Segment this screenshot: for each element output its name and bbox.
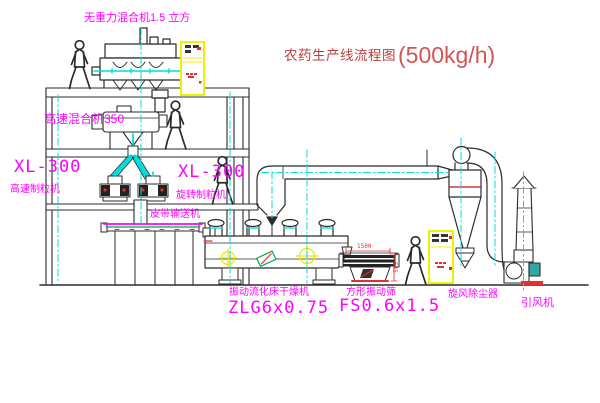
title-text: 农药生产线流程图 — [284, 44, 396, 67]
label-granulator-left-model: XL-300 — [14, 159, 81, 176]
label-gravity-mixer: 无重力混合机1.5 立方 — [84, 13, 190, 24]
process-flow-diagram: 无重力混合机1.5 立方 高速混合机350 XL-300 高速制粒机 XL-30… — [0, 0, 600, 403]
label-fan: 引风机 — [521, 298, 554, 309]
label-granulator-center-name: 旋转制粒机 — [176, 191, 226, 201]
vibrating-screen — [339, 247, 399, 281]
label-granulator-left-name: 高速制粒机 — [10, 185, 60, 195]
granulator-left — [100, 172, 130, 201]
label-high-speed-mixer: 高速混合机350 — [44, 113, 124, 125]
control-cabinet-2 — [429, 231, 453, 283]
label-dryer-name: 振动流化床干燥机 — [229, 288, 309, 298]
title-capacity: (500kg/h) — [398, 45, 495, 67]
belt-conveyor — [101, 223, 205, 285]
label-screen-model: FS0.6x1.5 — [339, 298, 440, 315]
dimension-label-1500: 1500 — [357, 244, 371, 250]
label-dust-collector: 旋风除尘器 — [448, 290, 498, 300]
worker-figure — [70, 41, 91, 89]
dimension-label-545: 545 — [391, 262, 397, 273]
diagram-title: 农药生产线流程图 (500kg/h) — [284, 44, 495, 67]
label-granulator-center-model: XL-300 — [178, 164, 245, 181]
worker-figure — [406, 237, 427, 285]
granulator-right — [138, 172, 168, 201]
control-cabinet-1 — [181, 42, 204, 95]
label-dryer-model: ZLG6x0.75 — [228, 300, 329, 317]
worker-figure — [166, 101, 187, 149]
label-belt-conveyor: 皮带输送机 — [150, 210, 200, 220]
